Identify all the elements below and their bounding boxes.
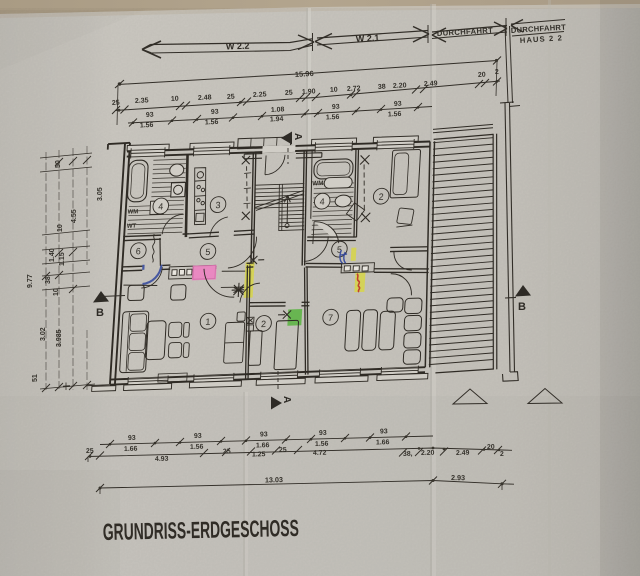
svg-text:93: 93 [260,431,268,438]
svg-text:25: 25 [227,94,235,101]
svg-text:38: 38 [378,84,386,91]
svg-text:1.56: 1.56 [315,441,329,448]
svg-text:93: 93 [128,435,136,442]
svg-text:2.49: 2.49 [456,450,470,457]
svg-text:93: 93 [319,430,327,437]
svg-text:1.40: 1.40 [49,248,56,262]
svg-text:93: 93 [146,112,154,119]
svg-text:93: 93 [194,433,202,440]
svg-text:3.985: 3.985 [56,329,63,347]
svg-text:1.66: 1.66 [124,446,138,453]
svg-text:A: A [292,133,303,140]
svg-text:1.66: 1.66 [376,439,390,446]
svg-text:1.25: 1.25 [252,451,266,458]
svg-text:5: 5 [337,245,343,255]
svg-text:2: 2 [378,192,384,202]
svg-text:13.03: 13.03 [265,475,283,484]
svg-text:4: 4 [319,197,325,207]
svg-text:93: 93 [332,104,340,111]
svg-text:10: 10 [57,224,64,232]
svg-text:2.20: 2.20 [421,450,435,457]
svg-text:1.90: 1.90 [302,88,316,96]
svg-text:A: A [281,396,292,403]
svg-text:2: 2 [500,451,504,458]
svg-text:4.93: 4.93 [155,456,169,463]
svg-text:GRUNDRISS-ERDGESCHOSS: GRUNDRISS-ERDGESCHOSS [103,515,300,545]
svg-text:3.05: 3.05 [97,187,104,201]
svg-text:1.66: 1.66 [256,442,270,449]
svg-text:93: 93 [211,109,219,116]
svg-text:15.96: 15.96 [295,69,314,79]
svg-text:4.72: 4.72 [313,450,327,457]
svg-text:7: 7 [328,313,334,323]
svg-text:W 2.1: W 2.1 [356,33,380,44]
svg-text:10: 10 [53,288,60,296]
svg-text:38,: 38, [403,451,413,458]
svg-text:2.93: 2.93 [451,473,465,482]
svg-text:1.15: 1.15 [59,252,66,266]
svg-text:WT: WT [127,224,137,230]
svg-text:10: 10 [171,96,179,103]
svg-text:1: 1 [205,317,211,327]
svg-text:4: 4 [158,201,164,211]
svg-text:10: 10 [330,87,338,94]
svg-text:20: 20 [478,72,486,79]
svg-text:B: B [518,301,526,313]
svg-text:1.56: 1.56 [190,444,204,451]
svg-text:5: 5 [205,247,211,257]
svg-text:4.55: 4.55 [71,209,78,223]
svg-text:1.56: 1.56 [140,122,154,130]
svg-text:1.56: 1.56 [205,119,219,127]
svg-text:B: B [96,307,104,319]
svg-text:51: 51 [32,374,39,382]
svg-text:1.56: 1.56 [326,114,340,122]
svg-text:2.72: 2.72 [347,85,361,93]
svg-text:3: 3 [215,200,221,210]
svg-text:20: 20 [487,444,495,451]
svg-text:6: 6 [136,246,142,256]
svg-text:2: 2 [261,319,267,329]
svg-text:2.49: 2.49 [424,80,438,88]
svg-text:93: 93 [394,101,402,108]
svg-text:2.20: 2.20 [393,82,407,90]
svg-text:2.48: 2.48 [198,94,212,102]
svg-text:25: 25 [279,447,287,454]
svg-text:WM: WM [312,180,324,187]
svg-text:1.94: 1.94 [270,116,284,124]
svg-text:25: 25 [86,448,94,455]
svg-text:50: 50 [55,160,62,168]
svg-text:25: 25 [285,90,293,97]
svg-text:3.02: 3.02 [40,327,47,341]
svg-text:2.35: 2.35 [135,97,149,105]
svg-text:1.08: 1.08 [271,106,285,114]
svg-text:93: 93 [380,428,388,435]
svg-text:2.25: 2.25 [253,91,267,99]
svg-text:W 2.2: W 2.2 [226,41,250,52]
svg-text:9.77: 9.77 [27,274,34,288]
svg-text:WM: WM [127,209,138,215]
svg-text:1.56: 1.56 [388,111,402,119]
svg-text:38: 38 [45,276,52,284]
svg-text:25: 25 [223,448,231,455]
svg-text:25: 25 [112,100,120,107]
